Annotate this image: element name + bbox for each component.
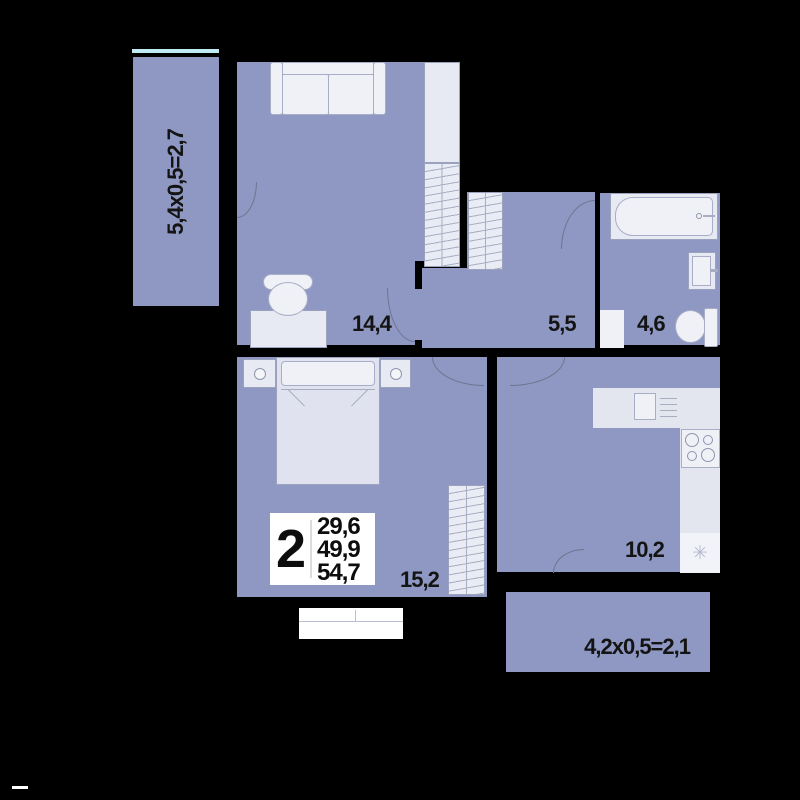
sofa	[270, 62, 386, 115]
bathtub	[610, 193, 718, 240]
oven	[634, 393, 656, 420]
nightstand	[380, 359, 411, 388]
wall	[415, 268, 422, 289]
watermark-dash	[12, 786, 28, 789]
bedroom-area-label: 15,2	[400, 567, 439, 593]
kitchen-sink: ✳	[680, 533, 720, 573]
washing-machine	[600, 310, 624, 348]
stove	[681, 429, 720, 468]
nightstand	[243, 359, 276, 388]
kitchen-counter-top	[593, 388, 720, 428]
apartment-info-box: 2 29,6 49,9 54,7	[270, 513, 375, 585]
kitchen-area-label: 10,2	[625, 537, 664, 563]
toilet-bowl	[675, 310, 706, 343]
balcony-bottom-label: 4,2x0,5=2,1	[584, 634, 690, 660]
total-area-value: 54,7	[317, 561, 360, 584]
wardrobe	[448, 485, 485, 595]
apartment-area-value: 49,9	[317, 538, 360, 561]
cabinet	[424, 62, 460, 163]
wall	[460, 57, 467, 268]
living-room-area-label: 14,4	[352, 311, 391, 337]
balcony-left-label: 5,4x0,5=2,7	[163, 129, 189, 235]
floor-plan: 5,4x0,5=2,7 4,2x0,5=2,1 14,4 5,5	[0, 0, 800, 800]
wardrobe	[424, 163, 460, 267]
bed	[276, 357, 380, 485]
sink	[688, 252, 718, 290]
hallway-area-label: 5,5	[548, 311, 576, 337]
window-ledge	[299, 608, 403, 639]
bathroom-area-label: 4,6	[637, 311, 665, 337]
rooms-count: 2	[270, 516, 310, 582]
wall	[415, 340, 422, 348]
living-area-value: 29,6	[317, 515, 360, 538]
kitchen-sink-icon: ✳	[692, 542, 708, 565]
balcony-bottom: 4,2x0,5=2,1	[506, 592, 710, 672]
balcony-left: 5,4x0,5=2,7	[133, 57, 219, 306]
drawer-lines	[660, 393, 677, 420]
window-line	[132, 49, 219, 53]
toilet-tank	[704, 308, 718, 347]
wardrobe	[468, 192, 503, 270]
chair-seat	[268, 282, 308, 316]
